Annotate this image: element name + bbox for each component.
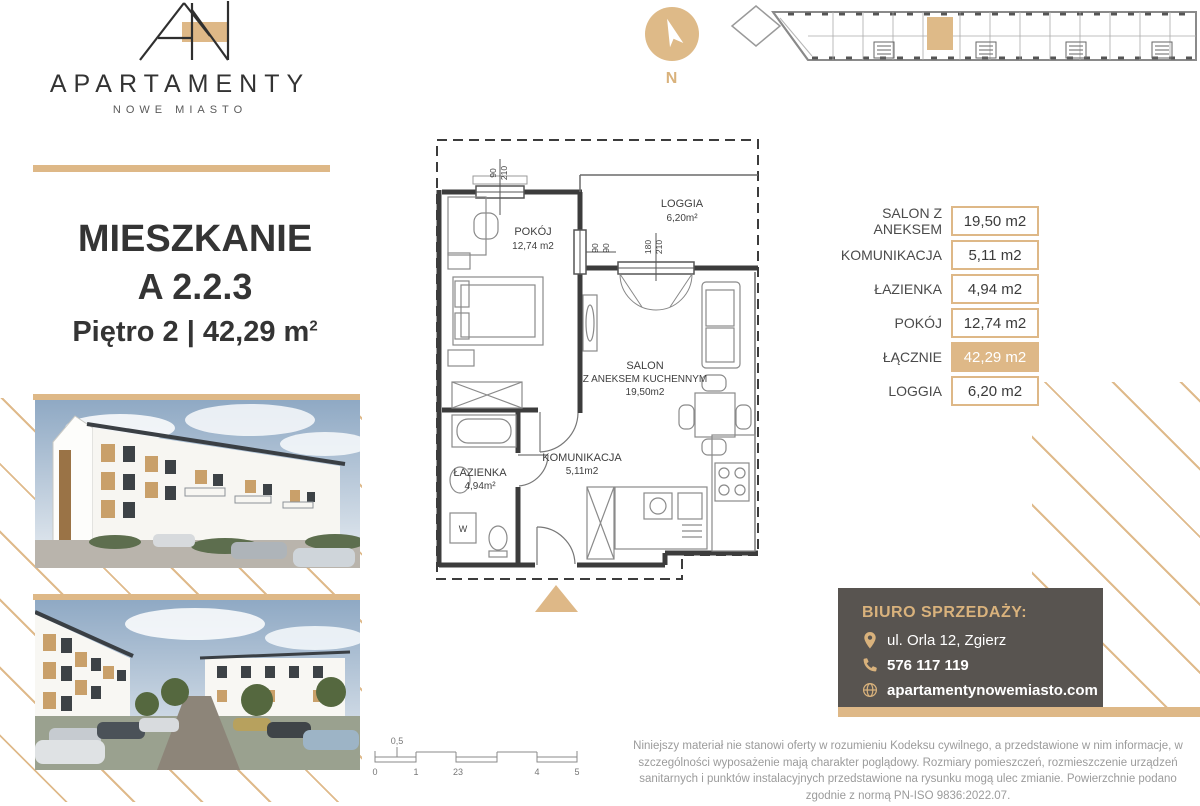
svg-text:23: 23 — [453, 767, 463, 777]
desk — [448, 197, 486, 255]
svg-text:90: 90 — [590, 243, 600, 253]
plan-thin-walls — [580, 175, 758, 551]
table-row-total: ŁĄCZNIE 42,29 m2 — [815, 342, 1039, 372]
table-row: LOGGIA 6,20 m2 — [815, 376, 1039, 406]
row-value: 5,11 m2 — [951, 240, 1039, 270]
contact-website: apartamentynowemiasto.com — [887, 682, 1098, 699]
globe-icon — [862, 681, 878, 699]
row-value: 6,20 m2 — [951, 376, 1039, 406]
toilet — [489, 526, 507, 557]
washer-label: W — [459, 524, 468, 534]
building-photo-1 — [35, 400, 360, 568]
phone-icon — [862, 656, 878, 674]
svg-text:90: 90 — [488, 168, 498, 178]
dining-table — [679, 375, 751, 455]
building-overview-plan — [728, 4, 1198, 70]
room-loggia-name: LOGGIA — [661, 198, 704, 210]
contact-phone: 576 117 119 — [887, 657, 969, 674]
contact-address-line: ul. Orla 12, Zgierz — [862, 631, 1103, 649]
row-value-total: 42,29 m2 — [951, 342, 1039, 372]
sales-office-box: BIURO SPRZEDAŻY: ul. Orla 12, Zgierz 576… — [838, 588, 1103, 707]
row-label: SALON Z ANEKSEM — [815, 205, 951, 237]
apartment-heading: MIESZKANIE — [10, 218, 380, 261]
svg-text:1: 1 — [413, 767, 418, 777]
apartment-number: A 2.2.3 — [10, 266, 380, 308]
contact-phone-line: 576 117 119 — [862, 656, 1103, 674]
apartment-floor-area: Piętro 2 | 42,29 m2 — [10, 316, 380, 349]
row-label: KOMUNIKACJA — [815, 247, 951, 263]
row-label: LOGGIA — [815, 383, 951, 399]
contact-bottom-bar — [838, 707, 1200, 717]
table-row: POKÓJ 12,74 m2 — [815, 308, 1039, 338]
floor-plan: 90 210 90 90 180 210 POKÓJ 12,74 m2 LOGG… — [430, 135, 765, 615]
flyer-page: APARTAMENTY NOWE MIASTO MIESZKANIE A 2.2… — [0, 0, 1200, 806]
contact-address: ul. Orla 12, Zgierz — [887, 632, 1006, 649]
table-row: SALON Z ANEKSEM 19,50 m2 — [815, 206, 1039, 236]
svg-text:180: 180 — [643, 240, 653, 254]
hall-mirror — [583, 295, 597, 351]
room-lazienka-name: ŁAZIENKA — [453, 467, 507, 479]
location-pin-icon — [862, 631, 878, 649]
table-row: KOMUNIKACJA 5,11 m2 — [815, 240, 1039, 270]
building-photo-2 — [35, 600, 360, 770]
room-pokoj-area: 12,74 m2 — [512, 241, 554, 252]
compass-north-icon: N — [640, 4, 704, 92]
bed — [453, 277, 543, 345]
row-value: 4,94 m2 — [951, 274, 1039, 304]
svg-text:210: 210 — [499, 166, 509, 180]
sales-office-heading: BIURO SPRZEDAŻY: — [862, 604, 1103, 622]
svg-text:5: 5 — [574, 767, 579, 777]
compass-north-label: N — [666, 70, 679, 87]
room-salon-name: SALON — [626, 360, 663, 372]
scale-bar: 0,5 0 1 23 4 5 — [368, 735, 588, 785]
row-value: 19,50 m2 — [951, 206, 1039, 236]
svg-text:4: 4 — [534, 767, 539, 777]
brand-subtitle: NOWE MIASTO — [30, 104, 330, 116]
room-lazienka-area: 4,94m² — [464, 481, 496, 492]
row-label: ŁĄCZNIE — [815, 349, 951, 365]
kitchen-hob — [712, 435, 755, 551]
kitchen-counter — [615, 487, 707, 549]
row-value: 12,74 m2 — [951, 308, 1039, 338]
wardrobe — [452, 382, 522, 408]
room-salon-name2: Z ANEKSEM KUCHENNYM — [583, 374, 707, 385]
brand-monogram-icon — [130, 0, 240, 64]
area-table: SALON Z ANEKSEM 19,50 m2 KOMUNIKACJA 5,1… — [815, 206, 1039, 410]
sofa — [702, 282, 740, 368]
row-label: ŁAZIENKA — [815, 281, 951, 297]
entrance-arrow-icon — [535, 585, 578, 612]
room-pokoj-name: POKÓJ — [514, 225, 551, 238]
table-row: ŁAZIENKA 4,94 m2 — [815, 274, 1039, 304]
svg-text:0: 0 — [372, 767, 377, 777]
plan-dashed-outline — [437, 140, 758, 579]
row-label: POKÓJ — [815, 315, 951, 331]
svg-text:0,5: 0,5 — [391, 736, 404, 746]
photo2-illustration — [35, 600, 360, 770]
legal-disclaimer: Niniejszy materiał nie stanowi oferty w … — [628, 738, 1188, 804]
highlighted-unit — [927, 17, 953, 50]
room-salon-area: 19,50m2 — [626, 387, 665, 398]
room-loggia-area: 6,20m² — [666, 213, 698, 224]
logo-divider — [33, 165, 330, 172]
brand-title: APARTAMENTY — [30, 70, 330, 99]
bathtub — [452, 415, 516, 447]
room-komunikacja-name: KOMUNIKACJA — [542, 452, 622, 464]
svg-text:90: 90 — [601, 243, 611, 253]
svg-text:210: 210 — [654, 240, 664, 254]
contact-website-line: apartamentynowemiasto.com — [862, 681, 1103, 699]
photo1-illustration — [35, 400, 360, 568]
room-komunikacja-area: 5,11m2 — [566, 466, 599, 477]
hall-cabinet — [587, 487, 614, 559]
plan-doors — [518, 412, 578, 565]
floor-area-sup: 2 — [309, 317, 317, 334]
floor-area-text: Piętro 2 | 42,29 m — [72, 316, 309, 348]
